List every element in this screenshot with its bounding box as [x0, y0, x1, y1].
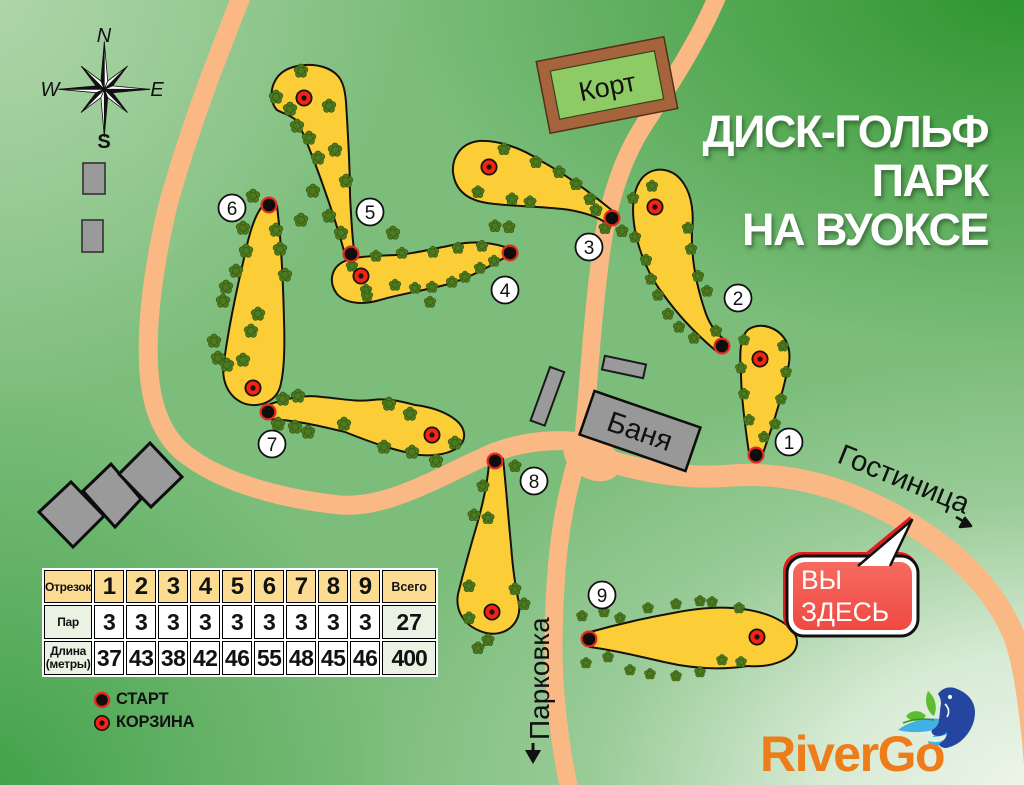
- svg-text:S: S: [97, 131, 110, 153]
- svg-text:4: 4: [500, 281, 511, 302]
- svg-text:3: 3: [584, 238, 595, 259]
- svg-text:ЗДЕСЬ: ЗДЕСЬ: [801, 597, 889, 627]
- svg-text:2: 2: [733, 289, 744, 310]
- svg-text:5: 5: [365, 203, 376, 224]
- svg-text:1: 1: [784, 433, 795, 454]
- svg-text:7: 7: [267, 435, 278, 456]
- svg-text:E: E: [150, 79, 164, 101]
- svg-text:9: 9: [597, 586, 608, 607]
- svg-text:W: W: [41, 79, 62, 101]
- svg-text:RiverGo: RiverGo: [760, 726, 944, 782]
- svg-text:Парковка: Парковка: [524, 617, 555, 740]
- svg-text:ВЫ: ВЫ: [801, 565, 842, 595]
- svg-text:8: 8: [529, 472, 540, 493]
- svg-text:6: 6: [227, 199, 238, 220]
- svg-text:N: N: [97, 25, 112, 47]
